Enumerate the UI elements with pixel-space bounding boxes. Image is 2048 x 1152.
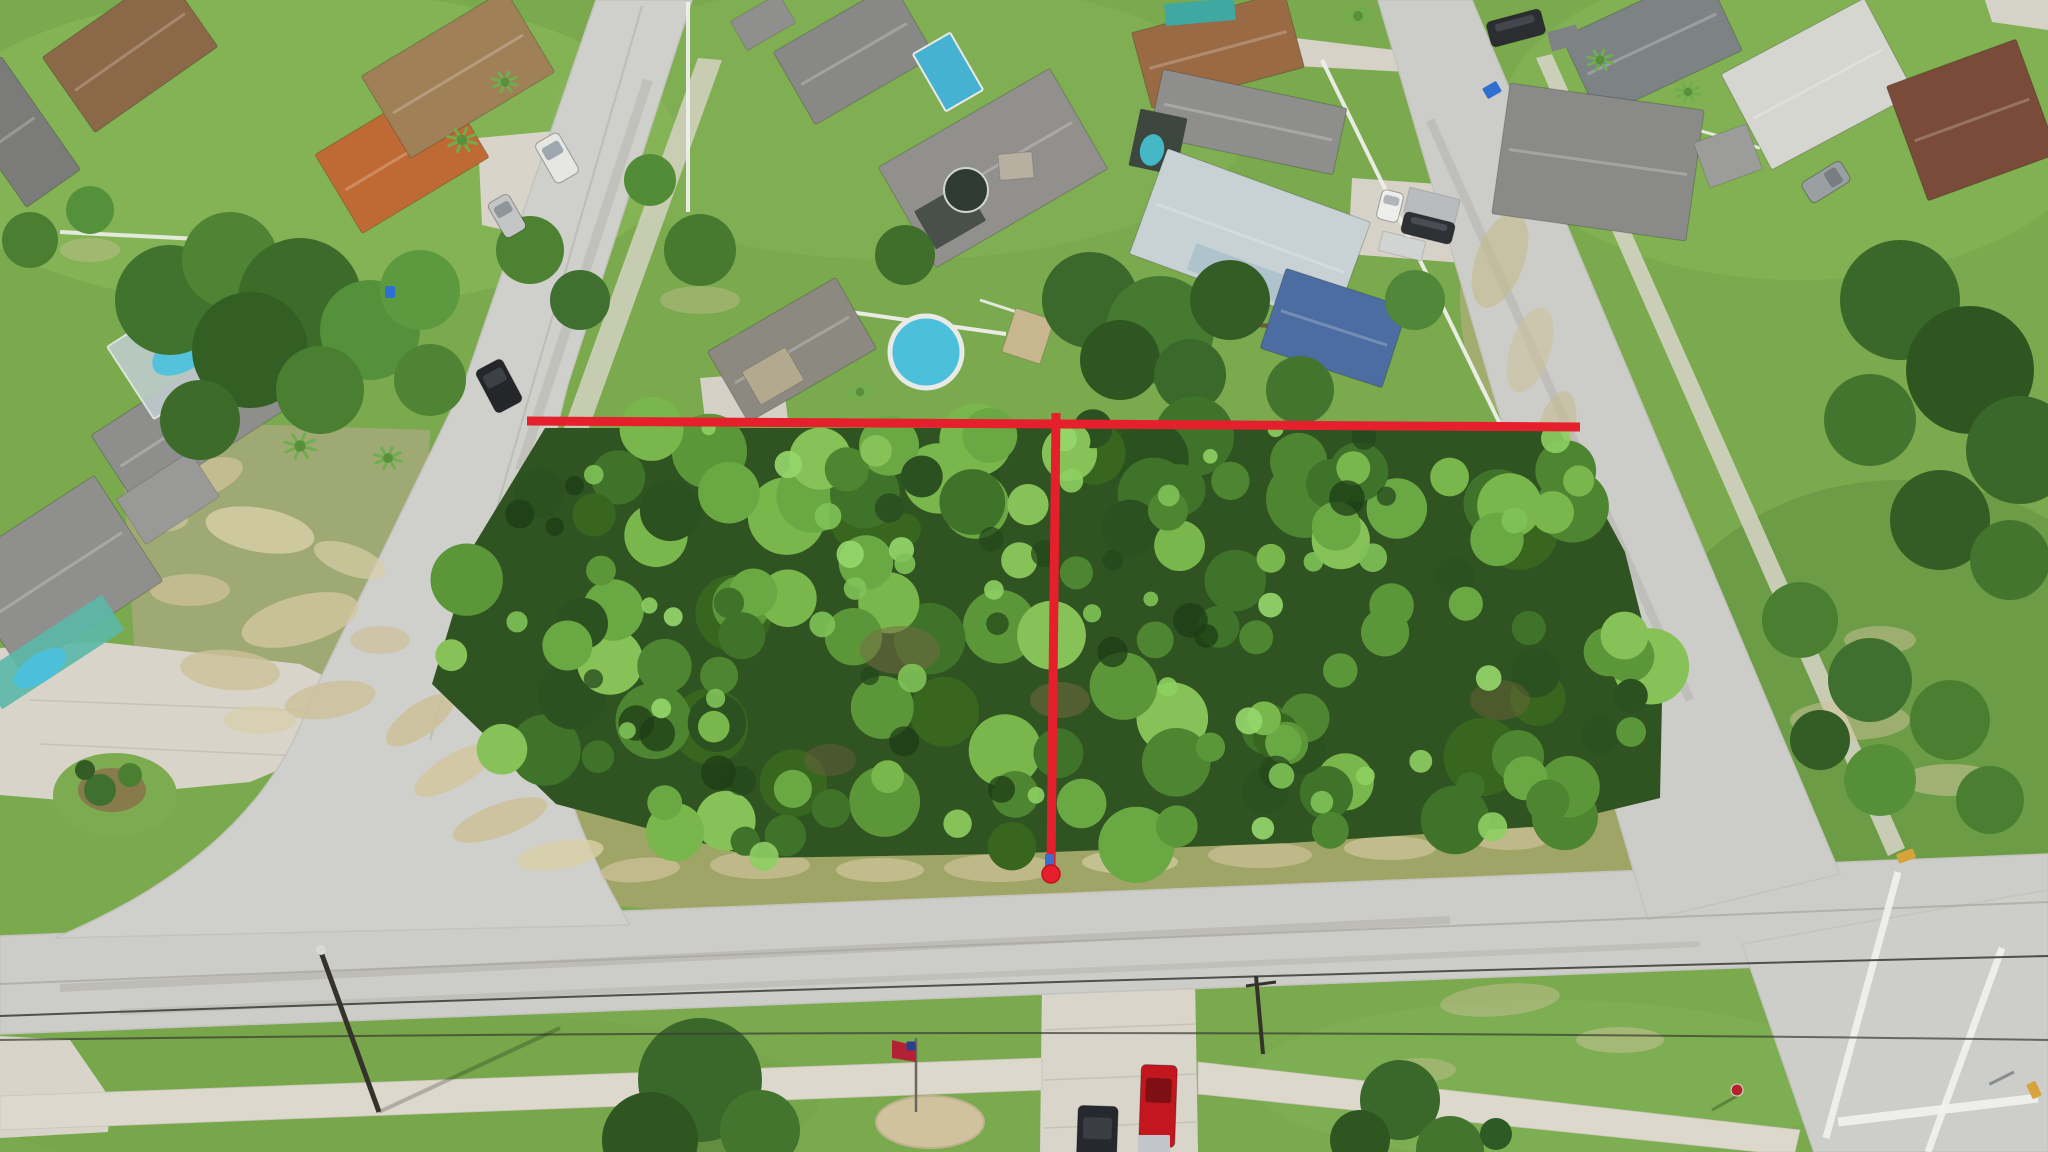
pine-tree-crown (1449, 587, 1483, 621)
pine-tree-crown (1526, 780, 1569, 823)
tree-canopy (1970, 520, 2048, 600)
pine-tree-crown (701, 755, 736, 790)
pine-tree-crown (637, 639, 691, 693)
streetlight-head (1982, 1082, 1990, 1090)
tree-canopy (160, 380, 240, 460)
pine-tree-crown (620, 397, 684, 461)
pine-tree-crown (1258, 593, 1283, 618)
tree-canopy (1824, 374, 1916, 466)
ellipse (1208, 842, 1312, 868)
tree-canopy (1762, 582, 1838, 658)
pine-tree-crown (1257, 544, 1286, 573)
pine-tree-crown (1059, 469, 1083, 493)
pine-tree-crown (1312, 812, 1349, 849)
pine-tree-crown (572, 493, 615, 536)
pine-tree-crown (1512, 611, 1546, 645)
pine-tree-crown (651, 698, 671, 718)
pine-tree-crown (584, 669, 603, 688)
pine-tree-crown (582, 740, 615, 773)
pine-tree-crown (775, 451, 802, 478)
pine-tree-crown (963, 408, 1018, 463)
pine-tree-crown (1203, 449, 1218, 464)
tree-canopy (1956, 766, 2024, 834)
pine-tree-crown (1563, 465, 1594, 496)
pine-tree-crown (1269, 763, 1295, 789)
pine-tree-crown (1359, 543, 1388, 572)
pine-tree-crown (1173, 603, 1208, 638)
tree-canopy (875, 225, 935, 285)
pine-tree-crown (1377, 487, 1396, 506)
palm-tree (856, 388, 864, 396)
pine-tree-crown (718, 612, 765, 659)
pine-tree-crown (1581, 716, 1620, 755)
pine-tree-crown (1097, 637, 1127, 667)
pine-tree-crown (1614, 679, 1648, 713)
pine-tree-crown (714, 588, 744, 618)
pine-tree-crown (1057, 779, 1107, 829)
tree-canopy (1385, 270, 1445, 330)
pine-tree-crown (542, 621, 592, 671)
pine-tree-crown (844, 577, 867, 600)
round-pool (890, 316, 962, 388)
pine-tree-crown (1531, 491, 1574, 534)
pine-tree-crown (584, 465, 604, 485)
pine-tree-crown (1409, 750, 1432, 773)
pole-dish (316, 945, 326, 955)
pine-tree-crown (979, 527, 1004, 552)
blue-trash-bin (385, 286, 395, 298)
palm-tree (500, 77, 509, 86)
pine-tree-crown (586, 556, 616, 586)
pine-tree-crown (901, 456, 943, 498)
tree-canopy (1790, 710, 1850, 770)
pine-tree-crown (1616, 717, 1646, 747)
ellipse (804, 744, 856, 776)
flag-canton (907, 1042, 916, 1051)
pine-tree-crown (431, 544, 503, 616)
pine-tree-crown (1369, 583, 1414, 628)
ellipse (1576, 1027, 1664, 1053)
pine-tree-crown (505, 500, 534, 529)
tree-canopy (75, 760, 95, 780)
stone-bed (876, 1096, 984, 1148)
pine-tree-crown (1336, 451, 1370, 485)
dark-suv-bottom-glass (1083, 1117, 1113, 1140)
palm-tree (294, 440, 305, 451)
tree-canopy (394, 344, 466, 416)
pine-tree-crown (1143, 592, 1158, 607)
red-boundary-vertical (1051, 413, 1056, 868)
tree-canopy (1844, 744, 1916, 816)
ellipse (60, 238, 120, 262)
pine-tree-crown (1476, 665, 1502, 691)
pine-tree-crown (1478, 812, 1507, 841)
pine-tree-crown (894, 553, 915, 574)
pine-tree-crown (812, 789, 851, 828)
pine-tree-crown (898, 664, 927, 693)
ellipse (860, 626, 940, 674)
pine-tree-crown (815, 503, 842, 530)
pine-tree-crown (1239, 620, 1273, 654)
trampoline (944, 168, 988, 212)
palm-tree (1353, 11, 1363, 21)
pine-tree-crown (1252, 817, 1275, 840)
pine-tree-crown (640, 480, 701, 541)
pine-tree-crown (939, 469, 1005, 535)
pine-tree-crown (1001, 542, 1037, 578)
pine-tree-crown (1158, 677, 1178, 697)
red-boundary-end-dot (1042, 865, 1060, 883)
pine-tree-crown (700, 657, 738, 695)
palm-tree (457, 135, 468, 146)
tree-canopy (66, 186, 114, 234)
pine-tree-crown (871, 760, 904, 793)
pine-tree-crown (1083, 604, 1101, 622)
palm-tree (1684, 88, 1692, 96)
pine-tree-crown (1430, 458, 1469, 497)
tree-canopy (1266, 356, 1334, 424)
ellipse (224, 706, 296, 734)
pine-tree-crown (1356, 767, 1375, 786)
tree-canopy (550, 270, 610, 330)
pine-tree-crown (1028, 787, 1045, 804)
pine-tree-crown (1235, 707, 1262, 734)
pine-tree-crown (1034, 728, 1084, 778)
pine-tree-crown (1103, 550, 1124, 571)
palm-tree (1595, 55, 1604, 64)
tree-canopy (1190, 260, 1270, 340)
pine-tree-crown (1007, 484, 1048, 525)
pine-tree-crown (749, 842, 778, 871)
shed (998, 152, 1034, 181)
pine-tree-crown (1060, 556, 1093, 589)
pine-tree-crown (860, 435, 892, 467)
tree-canopy (2, 212, 58, 268)
pine-tree-crown (1211, 462, 1249, 500)
ellipse (350, 626, 410, 654)
tree-canopy (118, 763, 142, 787)
pine-tree-crown (698, 462, 760, 524)
tree-canopy (624, 154, 676, 206)
pine-tree-crown (435, 639, 467, 671)
pine-tree-crown (1311, 791, 1334, 814)
pine-tree-crown (774, 770, 812, 808)
pine-tree-crown (943, 810, 971, 838)
ellipse (150, 574, 230, 606)
pine-tree-crown (875, 493, 904, 522)
ellipse (660, 286, 740, 314)
pine-tree-crown (889, 726, 919, 756)
pine-tree-crown (477, 724, 528, 775)
silver-car-bottom (1138, 1135, 1170, 1152)
pine-tree-crown (1304, 552, 1324, 572)
pine-tree-crown (1137, 621, 1174, 658)
tree-canopy (1828, 638, 1912, 722)
pine-tree-crown (1156, 805, 1198, 847)
pine-tree-crown (1608, 616, 1645, 653)
pine-tree-crown (706, 689, 725, 708)
pine-tree-crown (1502, 508, 1528, 534)
tree-canopy (1910, 680, 1990, 760)
pine-tree-crown (988, 822, 1036, 870)
aerial-photo-canvas (0, 0, 2048, 1152)
pine-tree-crown (545, 517, 564, 536)
pine-tree-crown (647, 785, 682, 820)
red-car-glass (1145, 1078, 1172, 1103)
pine-tree-crown (986, 612, 1009, 635)
tree-canopy (276, 346, 364, 434)
round-bush (1480, 1118, 1512, 1150)
pine-tree-crown (1323, 653, 1358, 688)
stop-sign (1731, 1084, 1743, 1096)
pine-tree-crown (809, 612, 835, 638)
aerial-photo (0, 0, 2048, 1152)
pine-tree-crown (837, 541, 864, 568)
ellipse (836, 858, 924, 882)
pine-tree-crown (1329, 480, 1365, 516)
pine-tree-crown (1456, 772, 1485, 801)
pine-tree-crown (984, 580, 1004, 600)
pine-tree-crown (565, 476, 584, 495)
palm-tree (383, 453, 393, 463)
ellipse (1344, 836, 1436, 860)
pine-tree-crown (1196, 733, 1225, 762)
pine-tree-crown (1158, 485, 1180, 507)
pine-tree-crown (988, 776, 1015, 803)
pine-tree-crown (698, 711, 730, 743)
ellipse (1030, 682, 1090, 718)
pine-tree-crown (506, 611, 527, 632)
tree-canopy (1080, 320, 1160, 400)
tree-canopy (664, 214, 736, 286)
pine-tree-crown (641, 597, 657, 613)
pine-tree-crown (619, 722, 636, 739)
pine-tree-crown (664, 607, 683, 626)
